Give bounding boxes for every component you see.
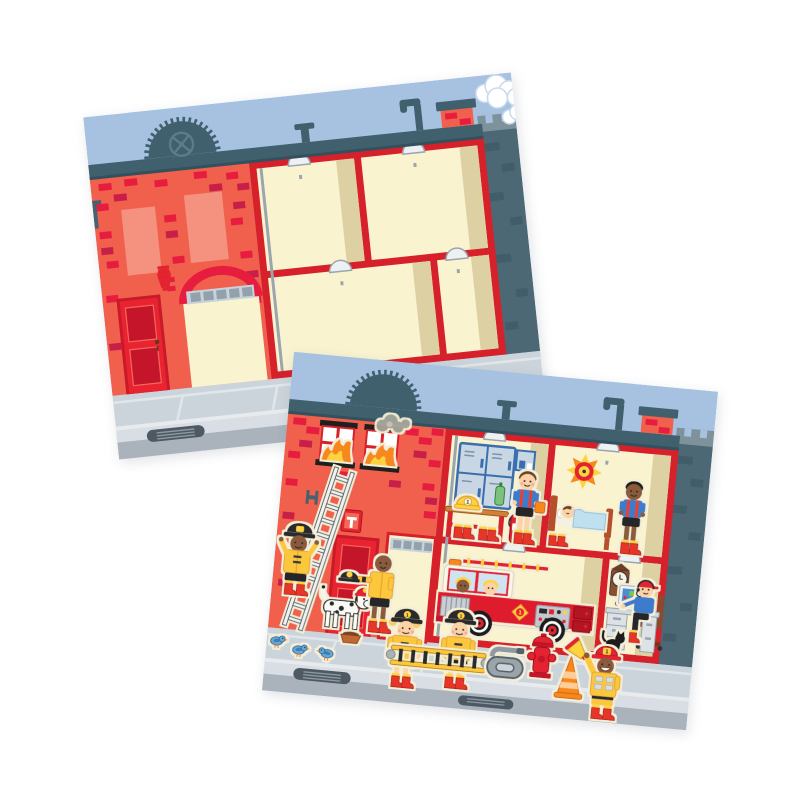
window-patch-left bbox=[121, 206, 162, 275]
svg-text:1: 1 bbox=[459, 614, 463, 620]
fire-alarm-box bbox=[341, 509, 363, 533]
window-patch-right bbox=[184, 191, 229, 263]
hose-coil-sticker bbox=[486, 645, 524, 679]
product-image: 1 bbox=[0, 0, 800, 800]
sticker-scene-art: 1 bbox=[262, 352, 718, 731]
card-sticker-scene: 1 bbox=[262, 352, 718, 731]
svg-text:1: 1 bbox=[405, 612, 409, 618]
svg-text:1: 1 bbox=[518, 610, 523, 616]
